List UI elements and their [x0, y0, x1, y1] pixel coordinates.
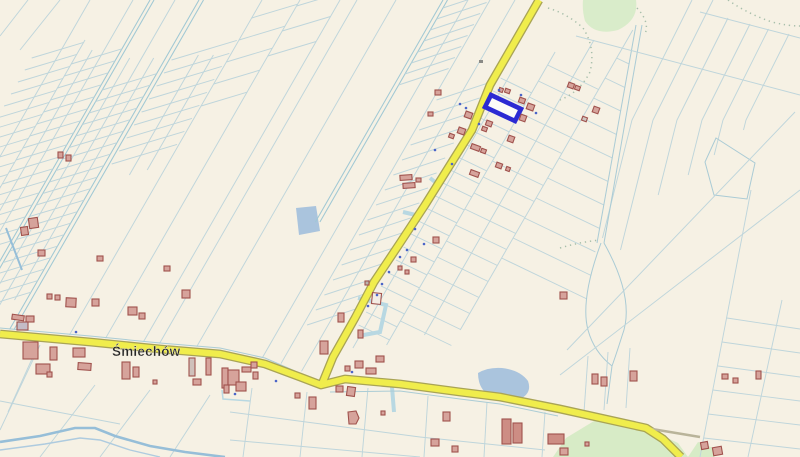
svg-text:Śmiechów: Śmiechów — [112, 344, 181, 359]
